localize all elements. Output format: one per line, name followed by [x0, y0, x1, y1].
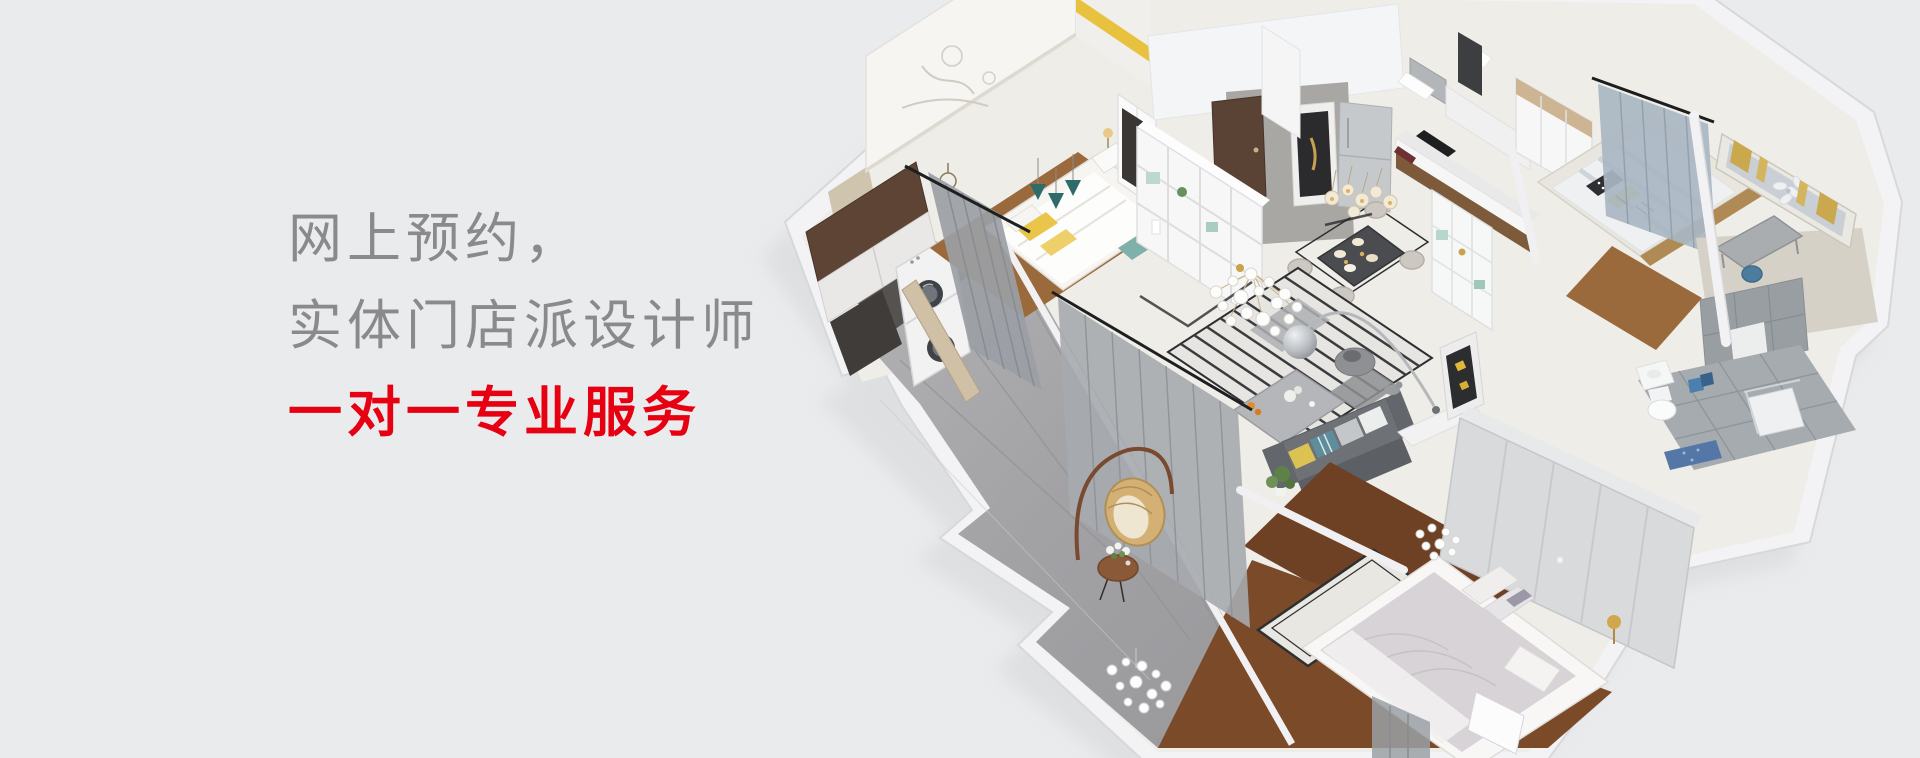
- hero-banner: 网上预约， 实体门店派设计师 一对一专业服务: [0, 0, 1920, 758]
- table-lamp-icon: [1103, 128, 1113, 138]
- blue-chair: [1742, 266, 1762, 282]
- hero-text-block: 网上预约， 实体门店派设计师 一对一专业服务: [288, 196, 760, 457]
- toilet: [1648, 400, 1676, 420]
- hero-line-1: 网上预约，: [288, 196, 760, 283]
- hero-line-2: 实体门店派设计师: [288, 283, 760, 370]
- mirror-ball: [1283, 325, 1317, 359]
- hero-line-3: 一对一专业服务: [288, 370, 760, 457]
- gold-lamp: [1607, 615, 1621, 629]
